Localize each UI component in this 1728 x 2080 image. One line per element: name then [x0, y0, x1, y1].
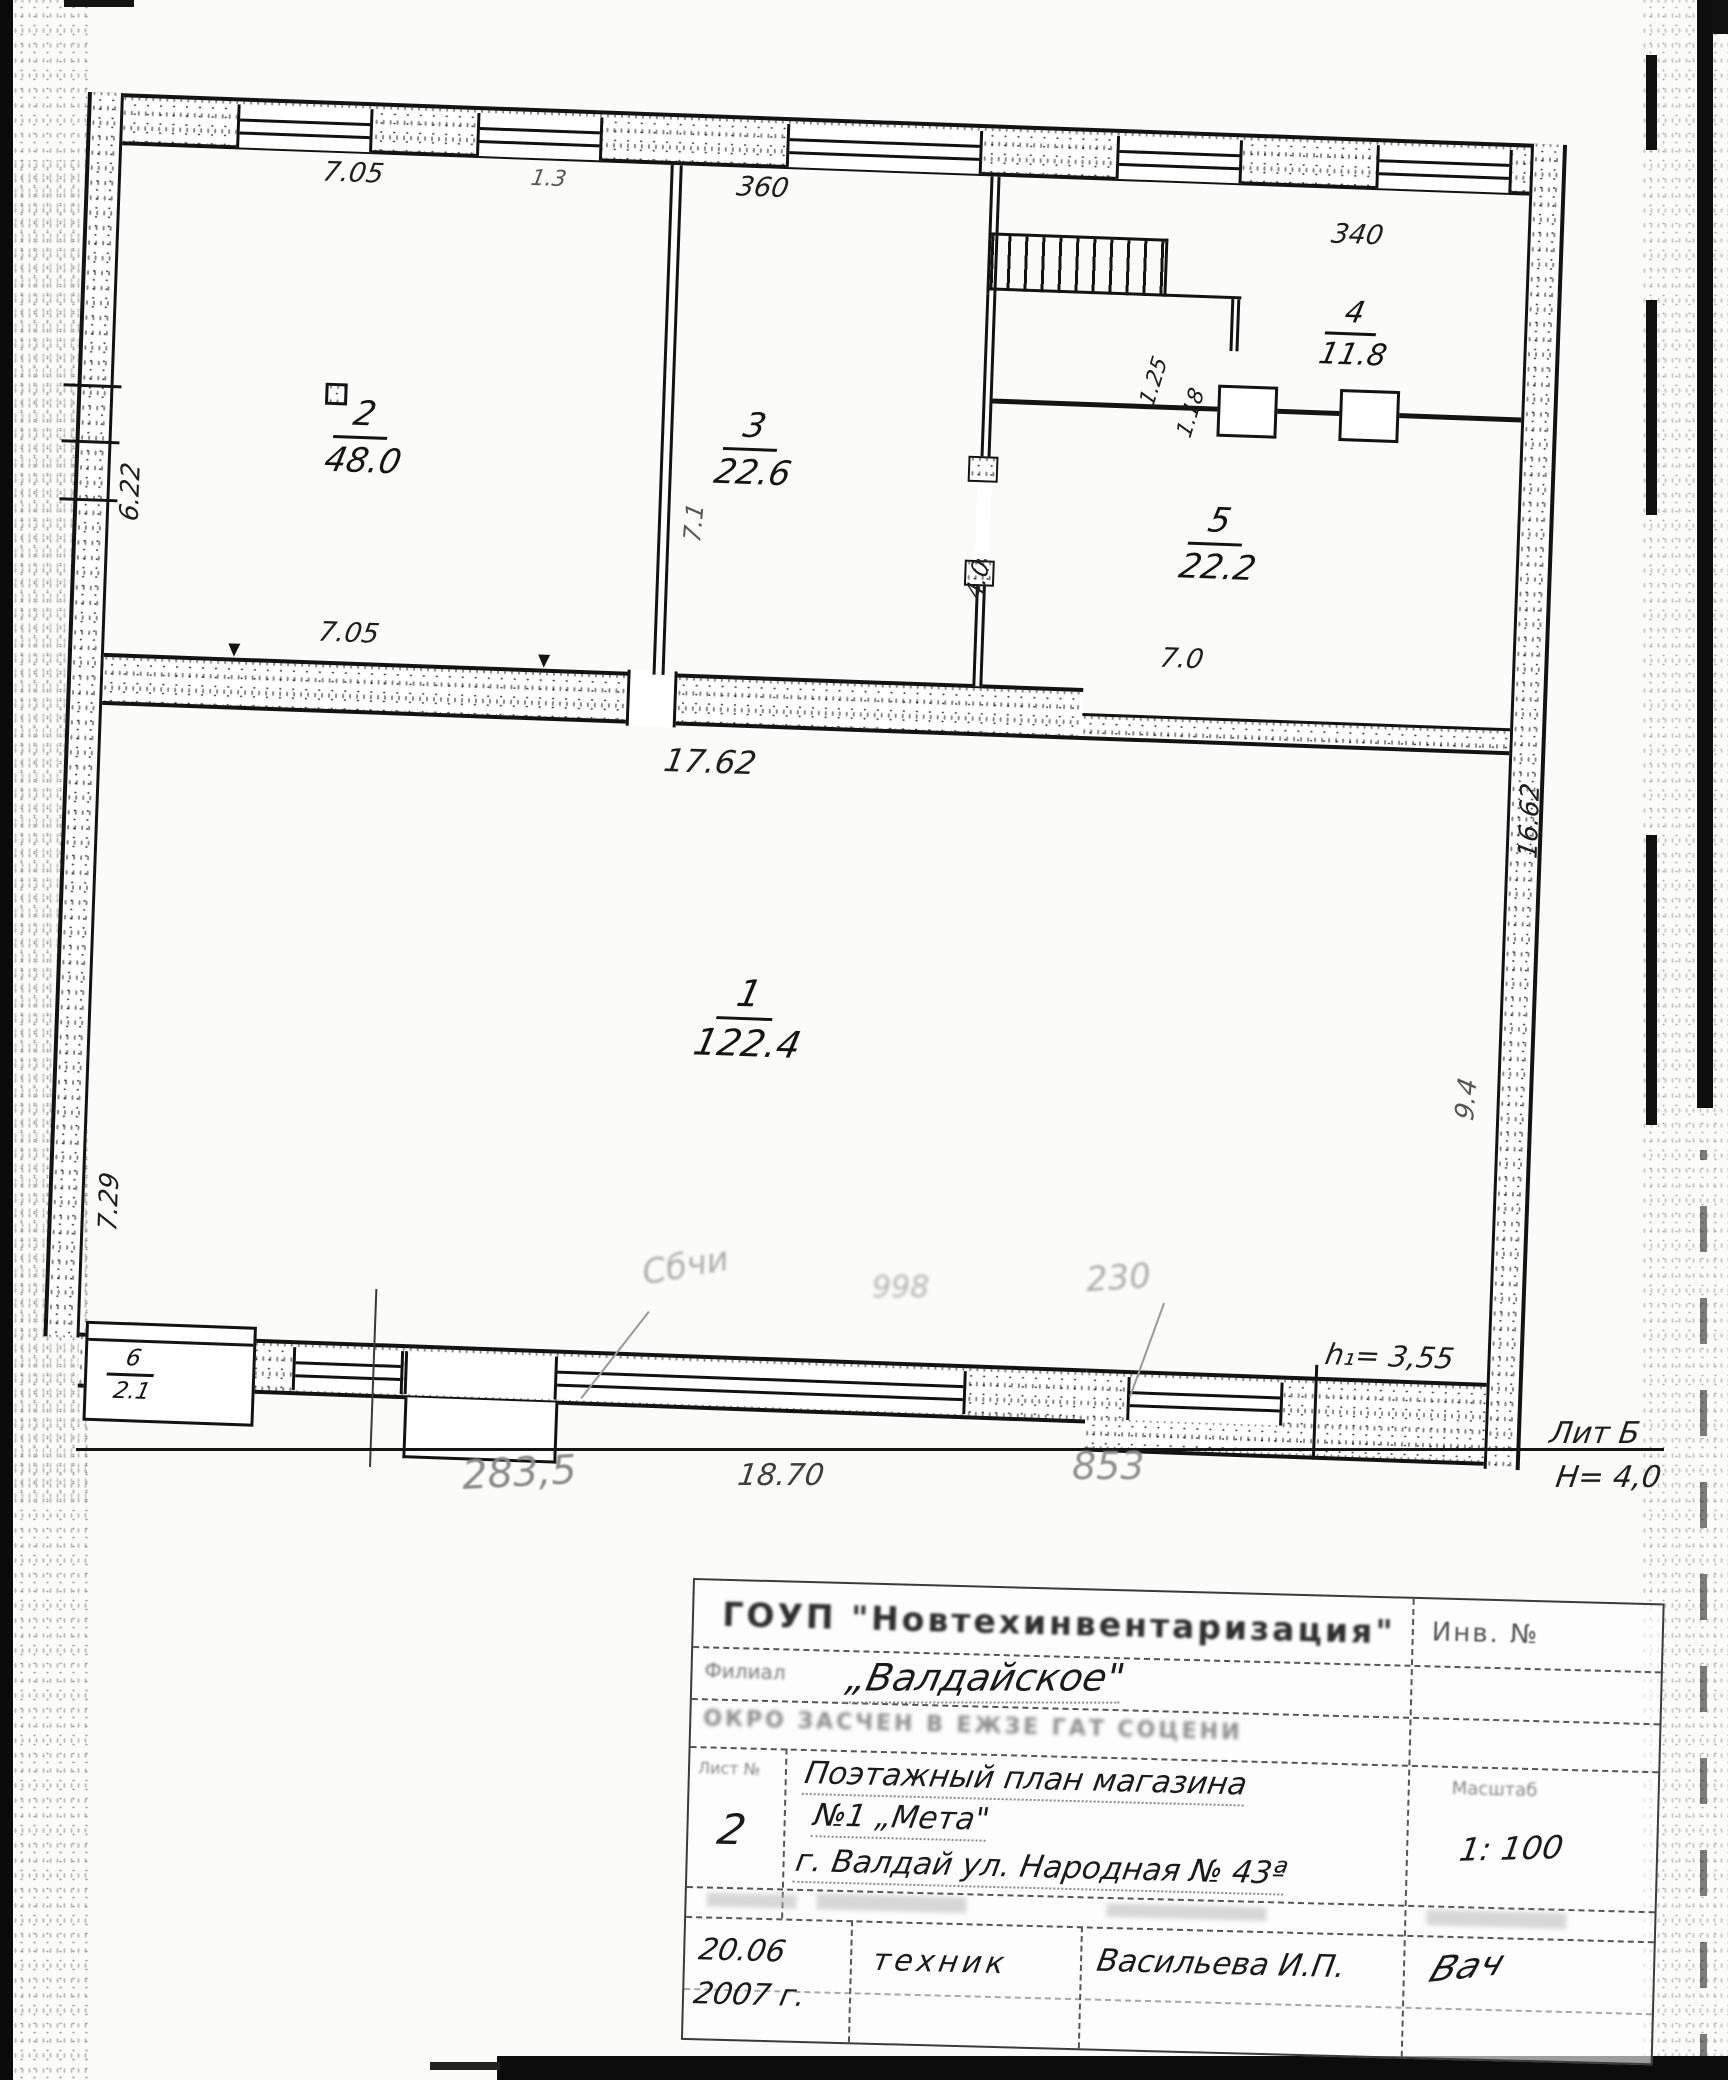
- middle-wall-left: [102, 653, 1083, 740]
- dim-mid-total: 17.62: [661, 741, 759, 782]
- room-area: 22.6: [711, 452, 795, 494]
- room-label: 4 11.8: [1319, 294, 1389, 373]
- window: [476, 113, 603, 160]
- dimension-arrow: [228, 643, 240, 656]
- date-line1: 20.06: [696, 1932, 789, 1969]
- height-note: h₁= 3,55: [1323, 1337, 1457, 1375]
- porch-room6: 6 2.1: [82, 1321, 256, 1427]
- object-address-line: г. Валдай ул. Народная № 43ª: [792, 1843, 1289, 1896]
- branch-value: „Валдайское": [842, 1656, 1129, 1704]
- dim-stair-door-1: 1.25: [1136, 325, 1182, 410]
- window: [1116, 136, 1243, 183]
- branch-label: Филиал: [704, 1658, 786, 1684]
- scan-bottom-band-taper: [430, 2062, 500, 2070]
- dim-door35: 4.0: [961, 535, 1000, 603]
- inventory-number-label: Инв. №: [1431, 1617, 1539, 1650]
- pillar: [1338, 389, 1400, 443]
- scan-right-bar-segment: [1646, 55, 1657, 150]
- room-label: 3 22.6: [714, 405, 793, 495]
- room-number: 4: [1324, 295, 1384, 337]
- dim-bottom-faint-right: 853: [1072, 1444, 1145, 1488]
- dim-mid-left: 7.05: [316, 617, 382, 650]
- title-block-col-line: [1401, 1599, 1415, 2057]
- room-area: 48.0: [321, 440, 405, 482]
- scale-value: 1: 100: [1457, 1828, 1566, 1868]
- liter-label: Лит Б: [1548, 1416, 1643, 1451]
- room-area: 2.1: [106, 1378, 158, 1405]
- room-area: 22.2: [1175, 546, 1259, 588]
- dim-top-left: 7.05: [321, 157, 387, 190]
- wall-room2-room3: [653, 165, 683, 675]
- room-label: 2 48.0: [324, 393, 403, 483]
- room-area: 122.4: [690, 1020, 805, 1066]
- title-block: ГОУП "Новтехинвентаризация" Инв. № Филиа…: [681, 1578, 1665, 2065]
- object-title-line2: №1 „Мета": [810, 1797, 992, 1841]
- window: [786, 124, 983, 174]
- room-number: 1: [716, 971, 782, 1021]
- entrance-door-opening: [404, 1351, 561, 1400]
- sheet-number-label: Лист №: [698, 1758, 761, 1779]
- shopfront-window: [554, 1357, 967, 1415]
- scan-top-mark: [64, 0, 134, 7]
- room-label: 6 2.1: [108, 1345, 157, 1406]
- middle-wall-right: [1081, 713, 1510, 755]
- room-number: 2: [333, 393, 396, 440]
- dim-top-mid: 360: [734, 171, 791, 204]
- room-number: 3: [723, 405, 786, 452]
- faded-form-text: [1106, 1903, 1266, 1921]
- scan-right-broken-bar: [1700, 1150, 1707, 2080]
- title-block-col-line: [781, 1748, 787, 1918]
- door-jamb-block: [968, 456, 999, 483]
- executor-role: техник: [870, 1943, 1011, 1981]
- floor-plan: 6 2.1 2 48.0 3 22.6 4 11.8 5 22.2 1 122.…: [39, 92, 1567, 1509]
- building-height-label: Н= 4,0: [1554, 1460, 1664, 1495]
- window: [1375, 145, 1512, 193]
- title-block-col-line: [1078, 1926, 1083, 2048]
- dim-wall23: 7.1: [678, 454, 713, 545]
- dim-left-lower: 7.29: [93, 1078, 128, 1233]
- room-area: 11.8: [1316, 336, 1390, 373]
- dim-right-inner: 9.4: [1450, 1042, 1486, 1124]
- scan-left-black-bar: [0, 0, 13, 2080]
- date-line2: 2007 г.: [691, 1976, 809, 2014]
- scale-label: Масштаб: [1451, 1778, 1537, 1801]
- dim-right-outer: 16.62: [1514, 744, 1548, 861]
- room-label: 1 122.4: [694, 970, 803, 1067]
- dim-stair-door-2: 1.18: [1173, 356, 1219, 441]
- signature: Вач: [1424, 1943, 1510, 1991]
- sheet-number-value: 2: [713, 1805, 750, 1854]
- scan-right-black-bar: [1697, 0, 1713, 1108]
- faded-form-text: [1426, 1909, 1566, 1929]
- dim-left-upper: 6.22: [115, 403, 149, 523]
- middle-wall-door-opening: [626, 670, 678, 728]
- dimension-arrow: [538, 654, 550, 667]
- executor-name: Васильева И.П.: [1094, 1943, 1348, 1985]
- north-wall: [86, 92, 1547, 196]
- room-number: 6: [106, 1345, 159, 1377]
- ghost-mark: 998: [872, 1270, 929, 1305]
- stair-door-stub-upper: [1229, 299, 1240, 351]
- window: [236, 104, 373, 152]
- room-label: 5 22.2: [1179, 499, 1258, 589]
- dim-mid-right: 7.0: [1158, 643, 1206, 675]
- dim-bottom-center: 18.70: [736, 1458, 827, 1493]
- scan-right-bar-segment: [1646, 300, 1657, 515]
- dim-top-right: 340: [1329, 219, 1386, 252]
- title-block-col-line: [848, 1920, 853, 2042]
- room-number: 5: [1188, 500, 1251, 547]
- staircase-treads: [989, 232, 1168, 296]
- title-block-row-line: [693, 1646, 1661, 1673]
- dim-bottom-faint-left: 283,5: [461, 1447, 578, 1499]
- scan-right-bar-segment: [1646, 835, 1657, 1125]
- window: [292, 1347, 404, 1394]
- stamp-org-name: ГОУП "Новтехинвентаризация": [714, 1595, 1405, 1652]
- dim-top-gap: 1.3: [529, 166, 568, 192]
- window: [1126, 1377, 1283, 1426]
- scan-top-right-blob: [1712, 0, 1728, 34]
- ground-line: [76, 1448, 1664, 1451]
- faded-form-text: [706, 1892, 796, 1908]
- title-block-row-line: [684, 1988, 1652, 2015]
- pillar: [1216, 385, 1278, 439]
- faded-form-text: [816, 1893, 966, 1913]
- scanned-floorplan-page: 6 2.1 2 48.0 3 22.6 4 11.8 5 22.2 1 122.…: [0, 0, 1728, 2080]
- ghost-mark: 230: [1085, 1256, 1153, 1300]
